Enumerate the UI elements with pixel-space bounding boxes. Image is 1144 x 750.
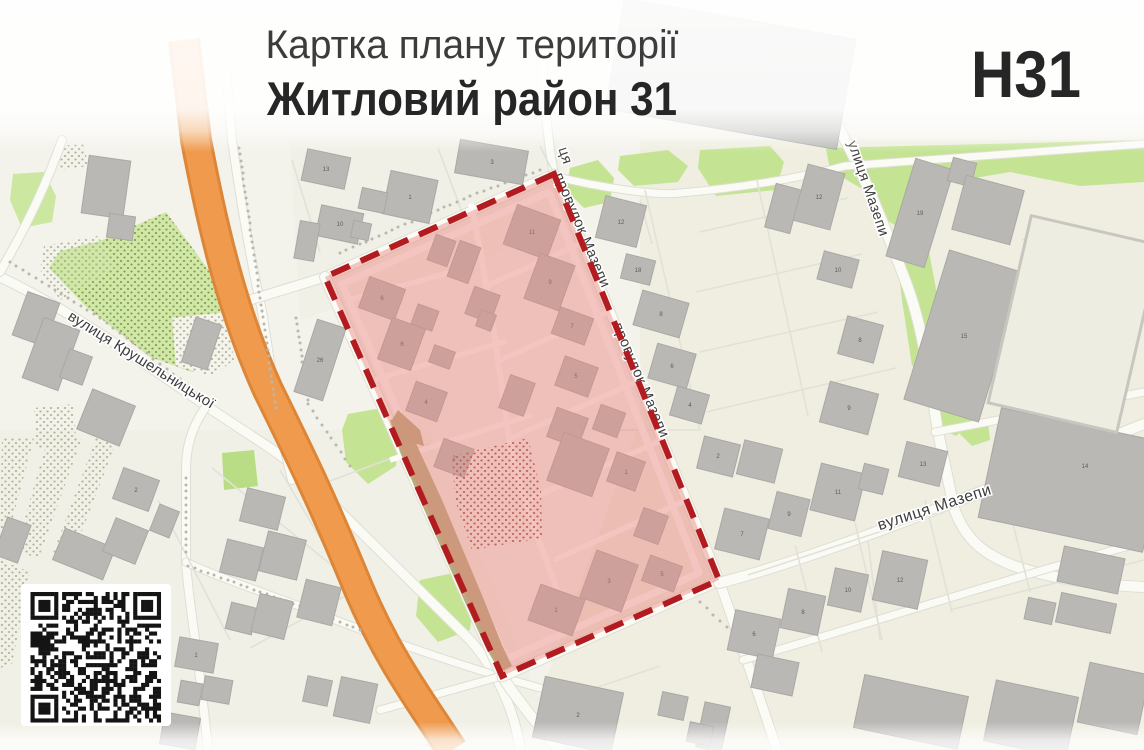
- svg-text:12: 12: [897, 578, 904, 584]
- svg-text:Н31: Н31: [971, 37, 1081, 111]
- svg-text:26: 26: [317, 358, 324, 364]
- svg-text:14: 14: [1082, 464, 1089, 470]
- svg-text:13: 13: [323, 167, 330, 173]
- svg-text:12: 12: [816, 195, 823, 201]
- svg-text:13: 13: [920, 462, 927, 468]
- svg-text:10: 10: [845, 588, 852, 594]
- svg-text:10: 10: [835, 268, 842, 274]
- svg-text:11: 11: [835, 490, 842, 496]
- svg-text:Житловий район 31: Житловий район 31: [266, 72, 677, 125]
- svg-text:18: 18: [635, 268, 642, 274]
- svg-text:10: 10: [337, 222, 344, 228]
- svg-text:15: 15: [961, 334, 968, 340]
- svg-text:19: 19: [917, 211, 924, 217]
- svg-text:Картка плану території: Картка плану території: [266, 23, 679, 67]
- svg-text:12: 12: [618, 220, 625, 226]
